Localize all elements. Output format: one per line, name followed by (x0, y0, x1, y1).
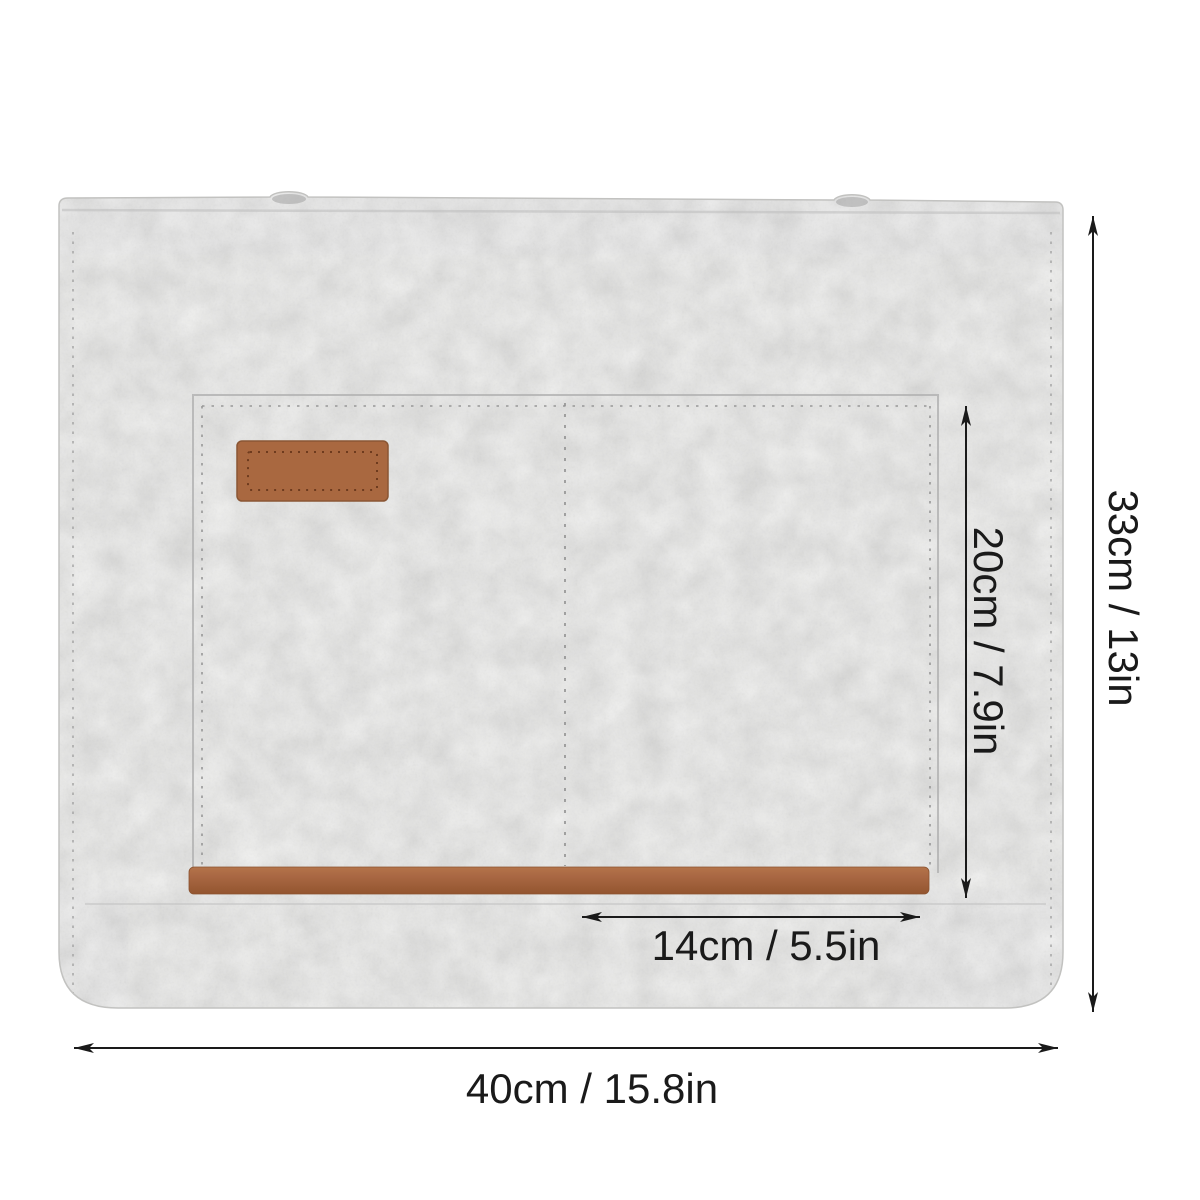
leather-trim-strip (189, 867, 929, 894)
height-dimension-label: 33cm / 13in (1099, 489, 1147, 706)
sleeve-body (40, 180, 1090, 1030)
product-image: 33cm / 13in 20cm / 7.9in 14cm / 5.5in 40… (0, 0, 1200, 1200)
felt-texture (40, 180, 1090, 1030)
pocket-width-dimension-label: 14cm / 5.5in (652, 922, 881, 970)
pocket-height-dimension-label: 20cm / 7.9in (964, 527, 1012, 756)
snap-bump-left (272, 194, 306, 204)
product-photo-scene (0, 0, 1200, 1200)
width-dimension-label: 40cm / 15.8in (466, 1065, 718, 1113)
snap-bump-right (836, 197, 868, 207)
leather-patch (237, 441, 388, 501)
